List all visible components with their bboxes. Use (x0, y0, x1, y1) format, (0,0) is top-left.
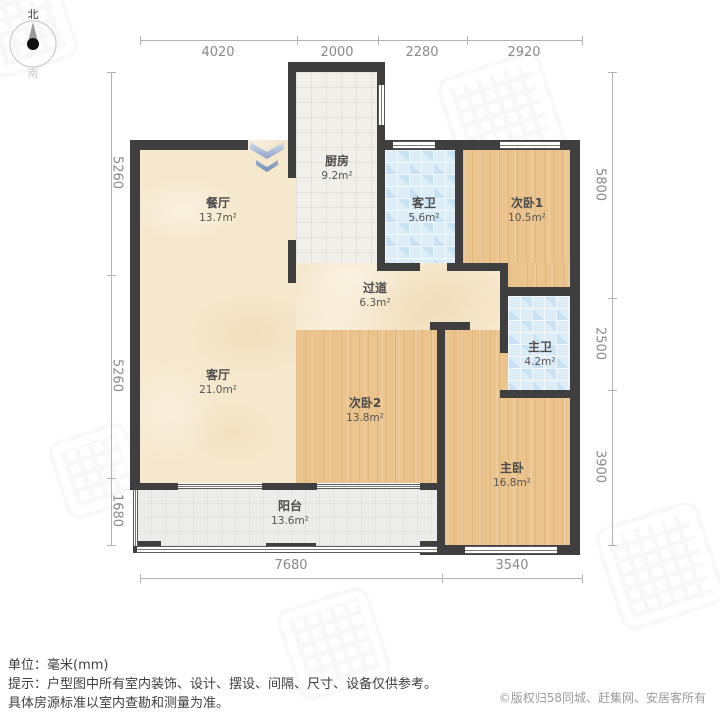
wall (133, 483, 178, 490)
room-area: 13.8m² (317, 412, 413, 426)
window (137, 546, 437, 553)
room-name: 次卧1 (511, 196, 543, 210)
room-name: 主卫 (528, 340, 552, 354)
room-name: 阳台 (278, 499, 302, 513)
wall (430, 322, 470, 330)
room-name: 次卧2 (349, 396, 381, 410)
room-label-living: 客厅 21.0m² (170, 368, 266, 397)
dimension-label: 5260 (110, 354, 125, 398)
room-label-bedroom1: 次卧1 10.5m² (479, 196, 575, 225)
room-area: 9.2m² (289, 170, 385, 184)
room-label-balcony: 阳台 13.6m² (242, 499, 338, 528)
room-label-master-bedroom: 主卧 16.8m² (464, 461, 560, 490)
dimension-label: 2000 (307, 45, 367, 60)
window (393, 141, 435, 149)
room-label-corridor: 过道 6.3m² (327, 281, 423, 310)
unit-note: 单位：毫米(mm) (8, 654, 108, 673)
dimension-label: 2920 (494, 45, 554, 60)
wall (288, 240, 296, 283)
room-label-kitchen: 厨房 9.2m² (289, 154, 385, 183)
room-label-bedroom2: 次卧2 13.8m² (317, 396, 413, 425)
room-area: 4.2m² (492, 356, 588, 370)
dimension-label: 5260 (110, 151, 125, 195)
room-floor-bedroom1-alcove (500, 263, 570, 287)
wall (288, 62, 385, 72)
dimension-label: 2280 (392, 45, 452, 60)
room-label-dining: 餐厅 13.7m² (170, 196, 266, 225)
room-area: 13.6m² (242, 515, 338, 529)
room-name: 客卫 (412, 196, 436, 210)
room-area: 6.3m² (327, 297, 423, 311)
dimension-label: 1680 (110, 489, 125, 533)
room-name: 厨房 (325, 154, 349, 168)
wall (463, 263, 500, 271)
window (500, 141, 560, 149)
room-label-master-bath: 主卫 4.2m² (492, 340, 588, 369)
dimension-line-left (111, 72, 112, 545)
room-label-guest-bath: 客卫 5.6m² (376, 196, 472, 225)
window (378, 85, 385, 125)
wall (447, 263, 455, 271)
window (465, 546, 557, 554)
room-name: 餐厅 (206, 196, 230, 210)
wall (420, 483, 445, 490)
sliding-door-sill (317, 484, 420, 489)
dimension-line-right (612, 72, 613, 545)
room-area: 21.0m² (170, 384, 266, 398)
dimension-line-bottom (140, 578, 582, 579)
tip-note-line1: 提示：户型图中所有室内装饰、设计、摆设、间隔、尺寸、设备仅供参考。 (8, 673, 437, 692)
room-area: 10.5m² (479, 212, 575, 226)
dimension-label: 2500 (593, 322, 608, 366)
dimension-label: 7680 (261, 558, 321, 573)
wall (500, 390, 580, 398)
wall (437, 322, 445, 483)
dimension-label: 3540 (482, 558, 542, 573)
room-area: 13.7m² (170, 212, 266, 226)
copyright-text: ©版权归58同城、赶集网、安居客所有 (499, 689, 706, 706)
dimension-line-top (140, 40, 582, 41)
wall (377, 263, 420, 271)
wall (508, 287, 570, 296)
room-name: 过道 (363, 281, 387, 295)
room-area: 5.6m² (376, 212, 472, 226)
wall (130, 140, 248, 150)
wall (262, 483, 317, 490)
window (133, 490, 138, 546)
tip-note-line2: 具体房源标准以室内查勘和测量为准。 (8, 692, 229, 711)
wall (130, 140, 140, 490)
dimension-label: 3900 (593, 445, 608, 489)
dimension-label: 5800 (593, 163, 608, 207)
room-name: 客厅 (206, 368, 230, 382)
dimension-label: 4020 (188, 45, 248, 60)
room-area: 16.8m² (464, 477, 560, 491)
room-name: 主卧 (500, 461, 524, 475)
sliding-door-sill (178, 484, 262, 489)
